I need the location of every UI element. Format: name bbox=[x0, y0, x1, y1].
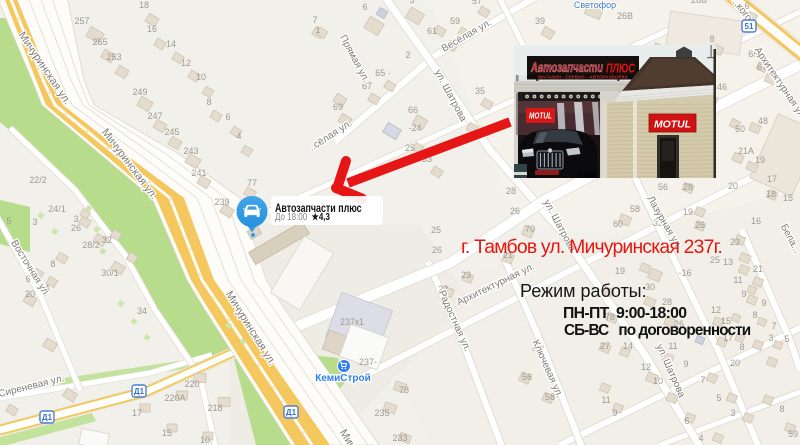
svg-text:МАГАЗИН - СЕРВИС - АВТОРАЗБОРК: МАГАЗИН - СЕРВИС - АВТОРАЗБОРКА bbox=[538, 75, 628, 80]
svg-text:ПЛЮС: ПЛЮС bbox=[606, 61, 635, 76]
svg-text:Автозапчасти: Автозапчасти bbox=[530, 60, 603, 75]
svg-text:MOTUL: MOTUL bbox=[529, 112, 552, 121]
svg-text:MOTUL: MOTUL bbox=[654, 120, 691, 131]
